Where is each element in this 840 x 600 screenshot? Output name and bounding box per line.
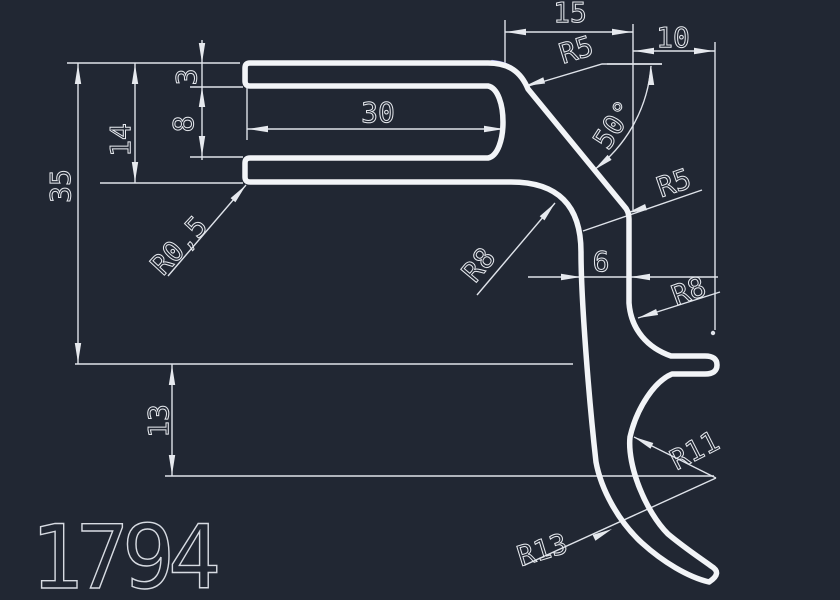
dim-text-14[interactable]: 14 — [104, 123, 137, 157]
cad-drawing-canvas[interactable]: 35 14 3 8 13 30 15 10 6 50° R5 R5 R0,5 R… — [0, 0, 840, 600]
dim-text-35[interactable]: 35 — [44, 169, 77, 203]
dim-text-6[interactable]: 6 — [593, 245, 610, 278]
dim-text-3[interactable]: 3 — [170, 69, 203, 86]
dim-text-8[interactable]: 8 — [167, 116, 200, 133]
dim-text-10[interactable]: 10 — [656, 21, 690, 54]
dim-text-30[interactable]: 30 — [361, 96, 395, 129]
extension-endpoint-dot — [711, 331, 715, 335]
part-number-label[interactable]: 1794 — [30, 506, 217, 600]
dim-text-13[interactable]: 13 — [142, 404, 175, 438]
dim-text-15[interactable]: 15 — [553, 0, 587, 29]
